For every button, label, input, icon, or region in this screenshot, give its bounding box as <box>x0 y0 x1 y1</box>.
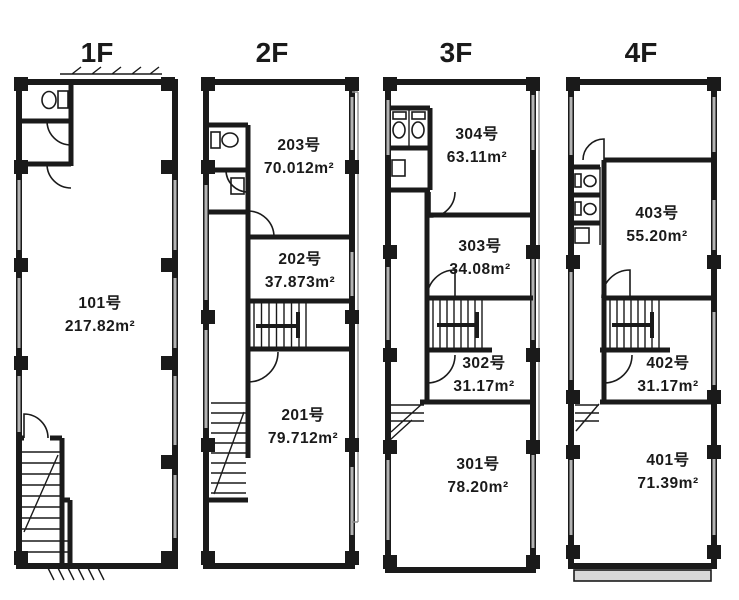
room-304-number: 304号 <box>455 125 498 143</box>
floor-title-4f: 4F <box>625 37 658 68</box>
sink-icon <box>392 160 405 176</box>
room-402-number: 402号 <box>646 354 689 372</box>
room-402-area: 31.17m² <box>637 378 698 395</box>
room-304-area: 63.11m² <box>447 149 507 166</box>
room-101-area: 217.82m² <box>65 318 135 335</box>
floor-plans-svg: 1F 101号 217.82m² 2F <box>0 0 739 600</box>
floor-plan-4f: 4F 403号 55.20 <box>566 37 721 581</box>
toilet-icon <box>393 112 406 138</box>
room-302-number: 302号 <box>462 354 505 372</box>
room-203-area: 70.012m² <box>264 160 334 177</box>
entrance-marks <box>48 568 104 580</box>
room-401-area: 71.39m² <box>637 475 698 492</box>
floor-title-2f: 2F <box>256 37 289 68</box>
sink-icon <box>575 228 589 243</box>
room-303-area: 34.08m² <box>449 261 510 278</box>
room-203-number: 203号 <box>277 136 320 154</box>
room-301-area: 78.20m² <box>447 479 508 496</box>
room-201-number: 201号 <box>281 406 324 424</box>
room-101-number: 101号 <box>78 294 121 312</box>
boundary-hatch <box>60 67 162 74</box>
floor-plan-1f: 1F 101号 217.82m² <box>14 37 175 580</box>
balcony-strip <box>574 570 711 581</box>
room-401-number: 401号 <box>646 451 689 469</box>
floor-plan-sheet: 1F 101号 217.82m² 2F <box>0 0 739 600</box>
room-201-area: 79.712m² <box>268 430 338 447</box>
floor-title-1f: 1F <box>81 37 114 68</box>
room-403-number: 403号 <box>635 204 678 222</box>
room-301-number: 301号 <box>456 455 499 473</box>
room-302-area: 31.17m² <box>453 378 514 395</box>
room-303-number: 303号 <box>458 237 501 255</box>
room-403-area: 55.20m² <box>626 228 687 245</box>
toilet-icon <box>211 132 238 148</box>
toilet-icon <box>412 112 425 138</box>
room-202-number: 202号 <box>278 250 321 268</box>
floor-title-3f: 3F <box>440 37 473 68</box>
room-202-area: 37.873m² <box>265 274 335 291</box>
floor-plan-2f: 2F 203号 70.012m² 202号 37.873m² <box>201 37 359 566</box>
floor-plan-3f: 3F 304号 63.11 <box>383 37 540 570</box>
